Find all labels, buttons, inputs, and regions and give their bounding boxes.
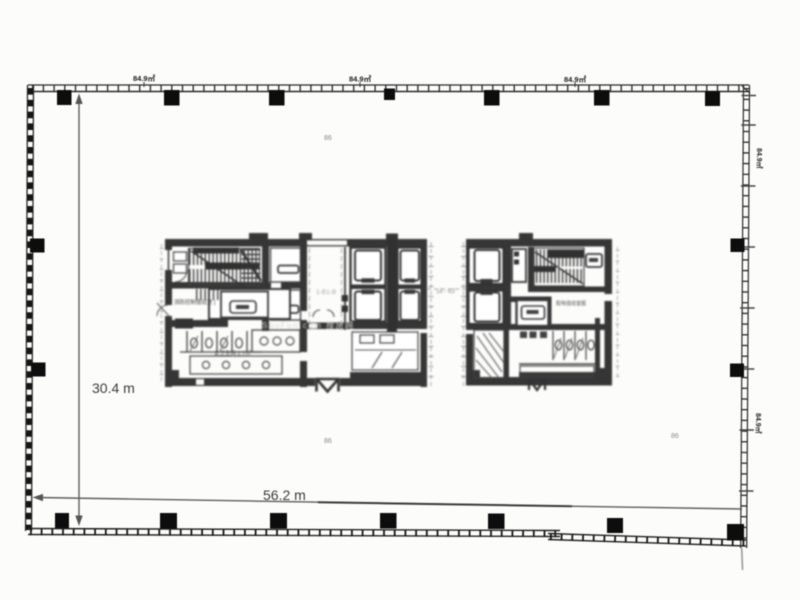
svg-text:84.9㎡: 84.9㎡	[755, 148, 764, 169]
svg-text:30.4 m: 30.4 m	[92, 380, 135, 396]
svg-text:SouFun.com 搜房网: SouFun.com 搜房网	[262, 320, 355, 330]
svg-text:86: 86	[324, 438, 332, 445]
svg-text:配电值班室图: 配电值班室图	[556, 300, 586, 307]
svg-text:56.2 m: 56.2 m	[263, 487, 306, 503]
svg-text:86: 86	[324, 135, 332, 142]
svg-text:女卫生间 2.7㎡: 女卫生间 2.7㎡	[214, 349, 251, 357]
svg-text:84.9㎡: 84.9㎡	[754, 413, 763, 434]
svg-text:84.9㎡: 84.9㎡	[133, 73, 156, 83]
svg-text:1-B1-B: 1-B1-B	[316, 289, 336, 296]
svg-text:消防控制值班室 [: 消防控制值班室 [	[174, 298, 216, 306]
svg-text:86: 86	[671, 433, 679, 440]
svg-text:18 - 63: 18 - 63	[436, 289, 455, 295]
